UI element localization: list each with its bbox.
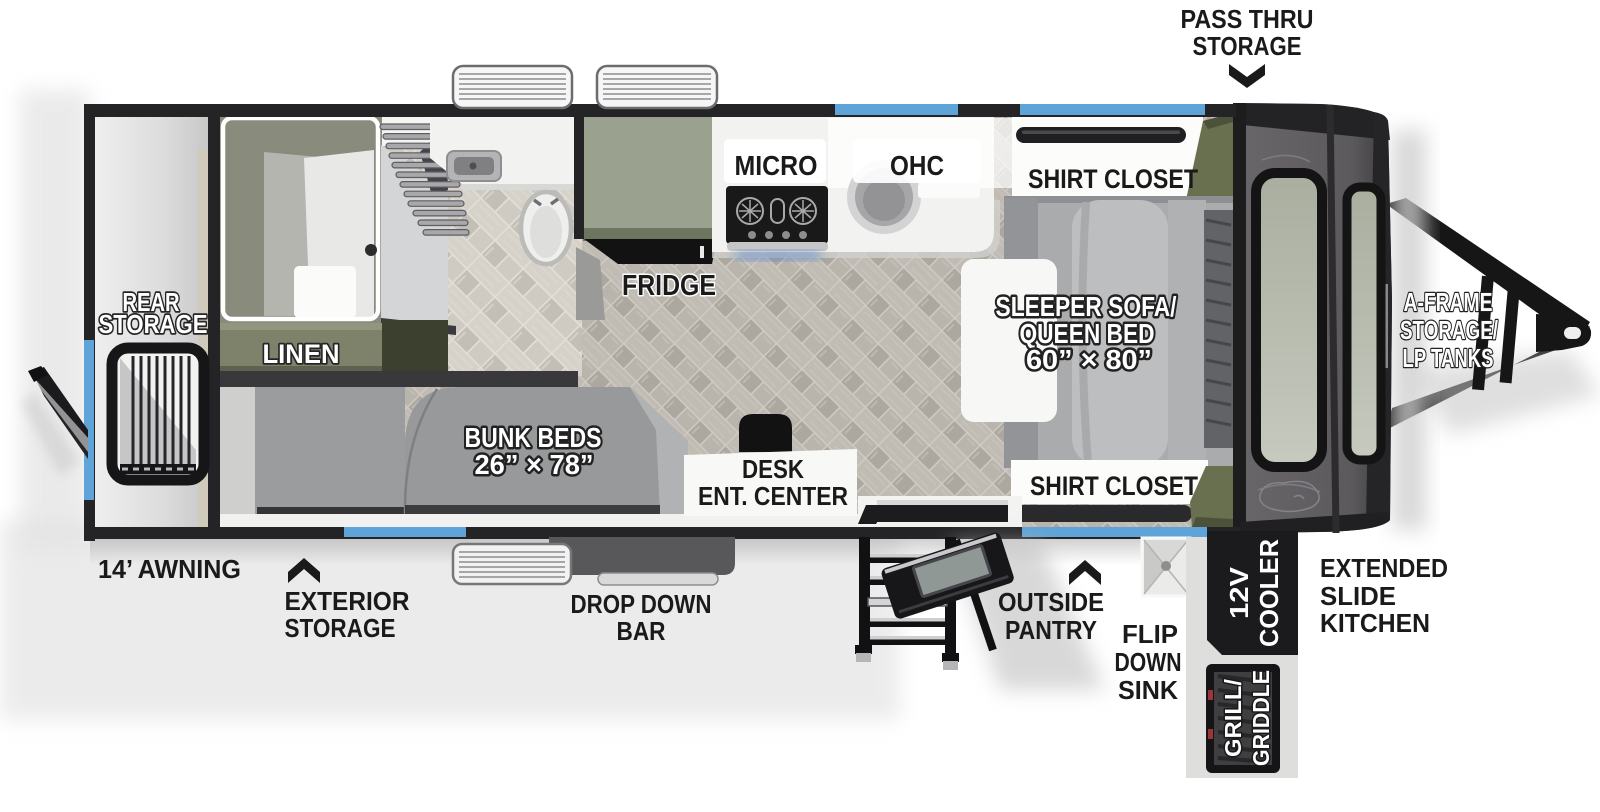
svg-text:SHIRT CLOSET: SHIRT CLOSET [1028, 164, 1198, 194]
svg-text:LINEN: LINEN [263, 339, 340, 369]
svg-text:MICRO: MICRO [735, 150, 818, 181]
svg-text:PASS THRU: PASS THRU [1181, 4, 1314, 34]
svg-text:A-FRAME: A-FRAME [1404, 287, 1493, 317]
svg-text:ENT. CENTER: ENT. CENTER [698, 481, 848, 511]
svg-text:SINK: SINK [1118, 675, 1178, 705]
svg-text:12V: 12V [1224, 566, 1254, 619]
svg-text:DROP DOWN: DROP DOWN [571, 589, 712, 619]
svg-text:FLIP: FLIP [1122, 619, 1178, 649]
svg-text:GRIDDLE: GRIDDLE [1248, 670, 1274, 766]
svg-text:BAR: BAR [617, 616, 666, 646]
svg-text:LP TANKS: LP TANKS [1403, 343, 1494, 373]
svg-text:FRIDGE: FRIDGE [622, 270, 716, 302]
svg-text:DOWN: DOWN [1115, 647, 1182, 677]
svg-text:COOLER: COOLER [1254, 539, 1284, 647]
svg-text:STORAGE/: STORAGE/ [1400, 315, 1498, 345]
svg-text:PANTRY: PANTRY [1005, 615, 1097, 645]
svg-text:EXTENDED: EXTENDED [1320, 553, 1448, 583]
svg-text:26” × 78”: 26” × 78” [475, 449, 594, 480]
svg-text:STORAGE: STORAGE [285, 613, 396, 643]
svg-text:EXTERIOR: EXTERIOR [285, 586, 410, 616]
svg-text:14’ AWNING: 14’ AWNING [98, 554, 241, 584]
svg-text:DESK: DESK [742, 454, 804, 484]
svg-text:SHIRT CLOSET: SHIRT CLOSET [1030, 471, 1198, 501]
svg-text:OHC: OHC [890, 150, 944, 181]
svg-text:GRILL/: GRILL/ [1220, 678, 1246, 757]
svg-text:60” × 80”: 60” × 80” [1026, 344, 1152, 375]
svg-text:KITCHEN: KITCHEN [1320, 608, 1430, 638]
svg-text:STORAGE: STORAGE [99, 309, 208, 339]
svg-text:SLIDE: SLIDE [1320, 581, 1396, 611]
svg-text:STORAGE: STORAGE [1193, 31, 1302, 61]
svg-text:OUTSIDE: OUTSIDE [998, 587, 1104, 617]
